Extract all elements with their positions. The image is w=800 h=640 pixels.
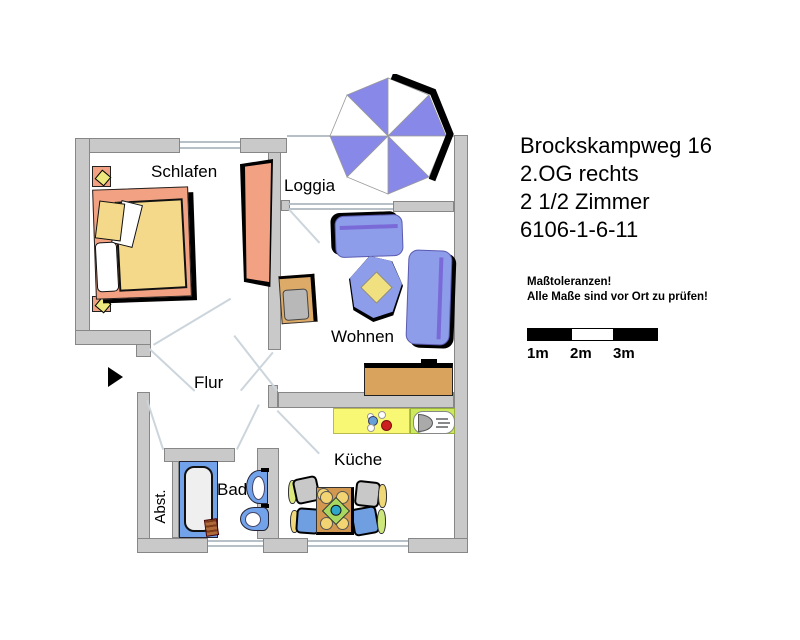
kitchen-counter bbox=[333, 408, 410, 434]
table-decor bbox=[360, 271, 393, 304]
kitchen-chair bbox=[352, 507, 388, 539]
notice-title: Maßtoleranzen! bbox=[527, 276, 611, 288]
bowl-icon bbox=[328, 503, 344, 519]
door-swing-kueche bbox=[277, 410, 320, 454]
coffee-table bbox=[349, 256, 403, 322]
washbasin bbox=[246, 470, 268, 504]
room-label-loggia: Loggia bbox=[284, 176, 335, 196]
scale-segment-black bbox=[527, 328, 571, 341]
plan-title-floor: 2.OG rechts bbox=[520, 161, 639, 187]
scale-bar bbox=[527, 328, 658, 341]
door-swing-entry bbox=[149, 348, 196, 392]
kitchen-sink-unit bbox=[410, 408, 455, 434]
basin-bowl bbox=[252, 476, 265, 500]
sink-wave-line bbox=[436, 418, 448, 420]
desk-chair bbox=[282, 288, 309, 321]
wall-bedroom-bottom bbox=[75, 330, 151, 345]
sink-wave-line bbox=[438, 422, 450, 424]
door-swing-loggia bbox=[289, 209, 321, 244]
room-label-wohnen: Wohnen bbox=[331, 327, 394, 347]
chair-seat bbox=[350, 505, 380, 537]
chair-cushion bbox=[378, 484, 387, 508]
wall-bottom-2 bbox=[263, 538, 308, 553]
entrance-arrow-icon bbox=[108, 367, 123, 387]
room-label-kueche: Küche bbox=[334, 450, 382, 470]
coffee-table-top bbox=[350, 256, 402, 318]
chair-cushion bbox=[377, 509, 386, 534]
sofa-three-seater bbox=[405, 249, 452, 345]
floorplan-page: Schlafen Loggia Wohnen Flur Küche Bad Ab… bbox=[0, 0, 800, 640]
room-label-abst: Abst. bbox=[152, 479, 169, 534]
sofa-backrest-line bbox=[437, 257, 444, 339]
window-loggia-line1 bbox=[288, 203, 393, 205]
wardrobe-face bbox=[245, 163, 271, 282]
scale-segment-black bbox=[614, 328, 658, 341]
plan-title-id: 6106-1-6-11 bbox=[520, 217, 638, 243]
window-bedroom-line2 bbox=[180, 147, 240, 149]
plan-title-address: Brockskampweg 16 bbox=[520, 133, 712, 159]
bed-pillow-white-bottom bbox=[95, 241, 120, 292]
sideboard bbox=[364, 363, 453, 396]
wall-bedroom-top-left bbox=[75, 138, 180, 153]
umbrella-symbol bbox=[326, 74, 454, 202]
window-bottom-left-line1 bbox=[208, 540, 263, 542]
nightstand-top bbox=[92, 166, 111, 187]
room-label-schlafen: Schlafen bbox=[151, 162, 217, 182]
scale-label-1m: 1m bbox=[527, 345, 549, 362]
desk bbox=[278, 274, 317, 324]
lamp-icon bbox=[95, 170, 112, 187]
wall-bedroom-top-right bbox=[240, 138, 287, 153]
wall-bath-top bbox=[164, 448, 235, 462]
sideboard-step bbox=[421, 359, 437, 365]
wall-bedroom-left bbox=[75, 138, 90, 345]
door-swing-bedroom bbox=[153, 298, 231, 346]
wall-bottom-1 bbox=[137, 538, 208, 553]
bathtub-surround bbox=[179, 461, 218, 538]
window-bedroom-line1 bbox=[180, 141, 240, 143]
wall-loggia-bottom bbox=[393, 201, 454, 212]
basin-edge bbox=[261, 468, 269, 472]
scale-label-2m: 2m bbox=[570, 345, 592, 362]
kitchen-table bbox=[316, 487, 354, 535]
scale-label-3m: 3m bbox=[613, 345, 635, 362]
toilet-bowl bbox=[245, 512, 261, 527]
window-bottom-right-line2 bbox=[308, 545, 408, 547]
stove-burner-red bbox=[381, 420, 392, 431]
window-loggia-line2 bbox=[288, 208, 393, 210]
window-bottom-left-line2 bbox=[208, 545, 263, 547]
sink-wave-line bbox=[436, 426, 448, 428]
wall-bottom-3 bbox=[408, 538, 468, 553]
wall-right bbox=[454, 135, 468, 553]
stove-burner bbox=[367, 424, 375, 432]
sofa-backrest-line bbox=[340, 224, 398, 230]
plan-title-rooms: 2 1/2 Zimmer bbox=[520, 189, 650, 215]
wall-abst-divider bbox=[172, 461, 179, 538]
wall-lower-left bbox=[137, 392, 150, 553]
stove-burner bbox=[378, 411, 386, 419]
toilet bbox=[240, 507, 269, 531]
room-label-flur: Flur bbox=[194, 373, 223, 393]
sink-basin bbox=[413, 411, 455, 434]
bath-mat bbox=[204, 518, 219, 537]
door-swing-bad bbox=[236, 404, 260, 450]
bed-pillow-yellow bbox=[95, 201, 125, 242]
faucet-icon bbox=[418, 414, 433, 432]
sofa-two-seater bbox=[334, 214, 403, 258]
room-label-bad: Bad bbox=[217, 480, 247, 500]
window-bottom-right-line1 bbox=[308, 540, 408, 542]
scale-segment-white bbox=[571, 328, 614, 341]
notice-body: Alle Maße sind vor Ort zu prüfen! bbox=[527, 291, 708, 303]
wardrobe bbox=[240, 159, 273, 287]
